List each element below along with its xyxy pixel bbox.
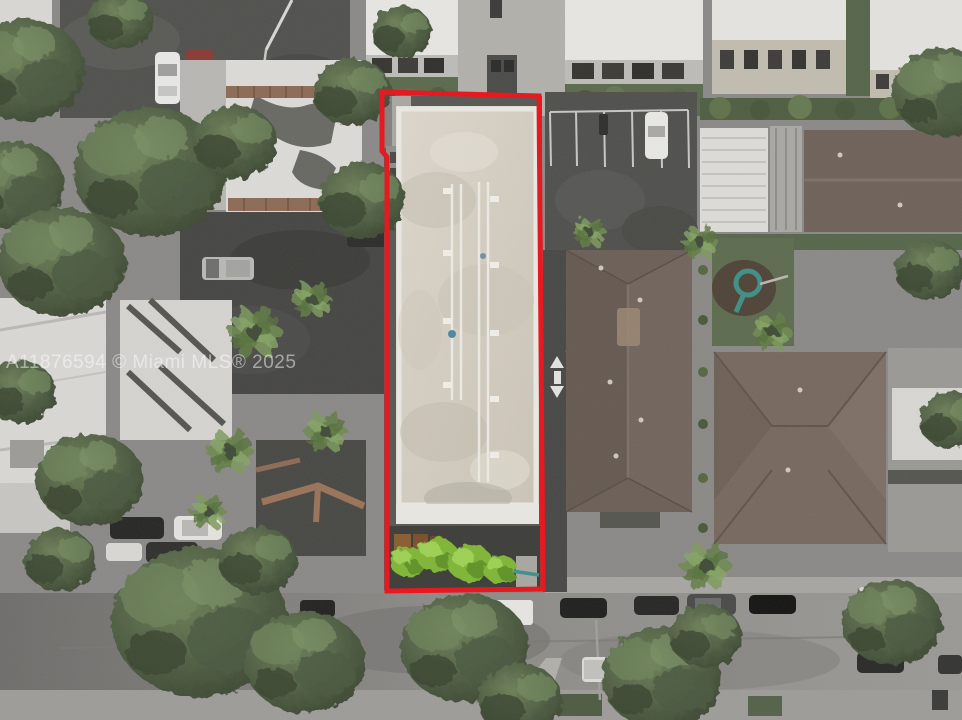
photo-grain-overlay [0,0,962,720]
aerial-photo: A11876594 © Miami MLS® 2025 [0,0,962,720]
aerial-photo-canvas: A11876594 © Miami MLS® 2025 [0,0,962,720]
